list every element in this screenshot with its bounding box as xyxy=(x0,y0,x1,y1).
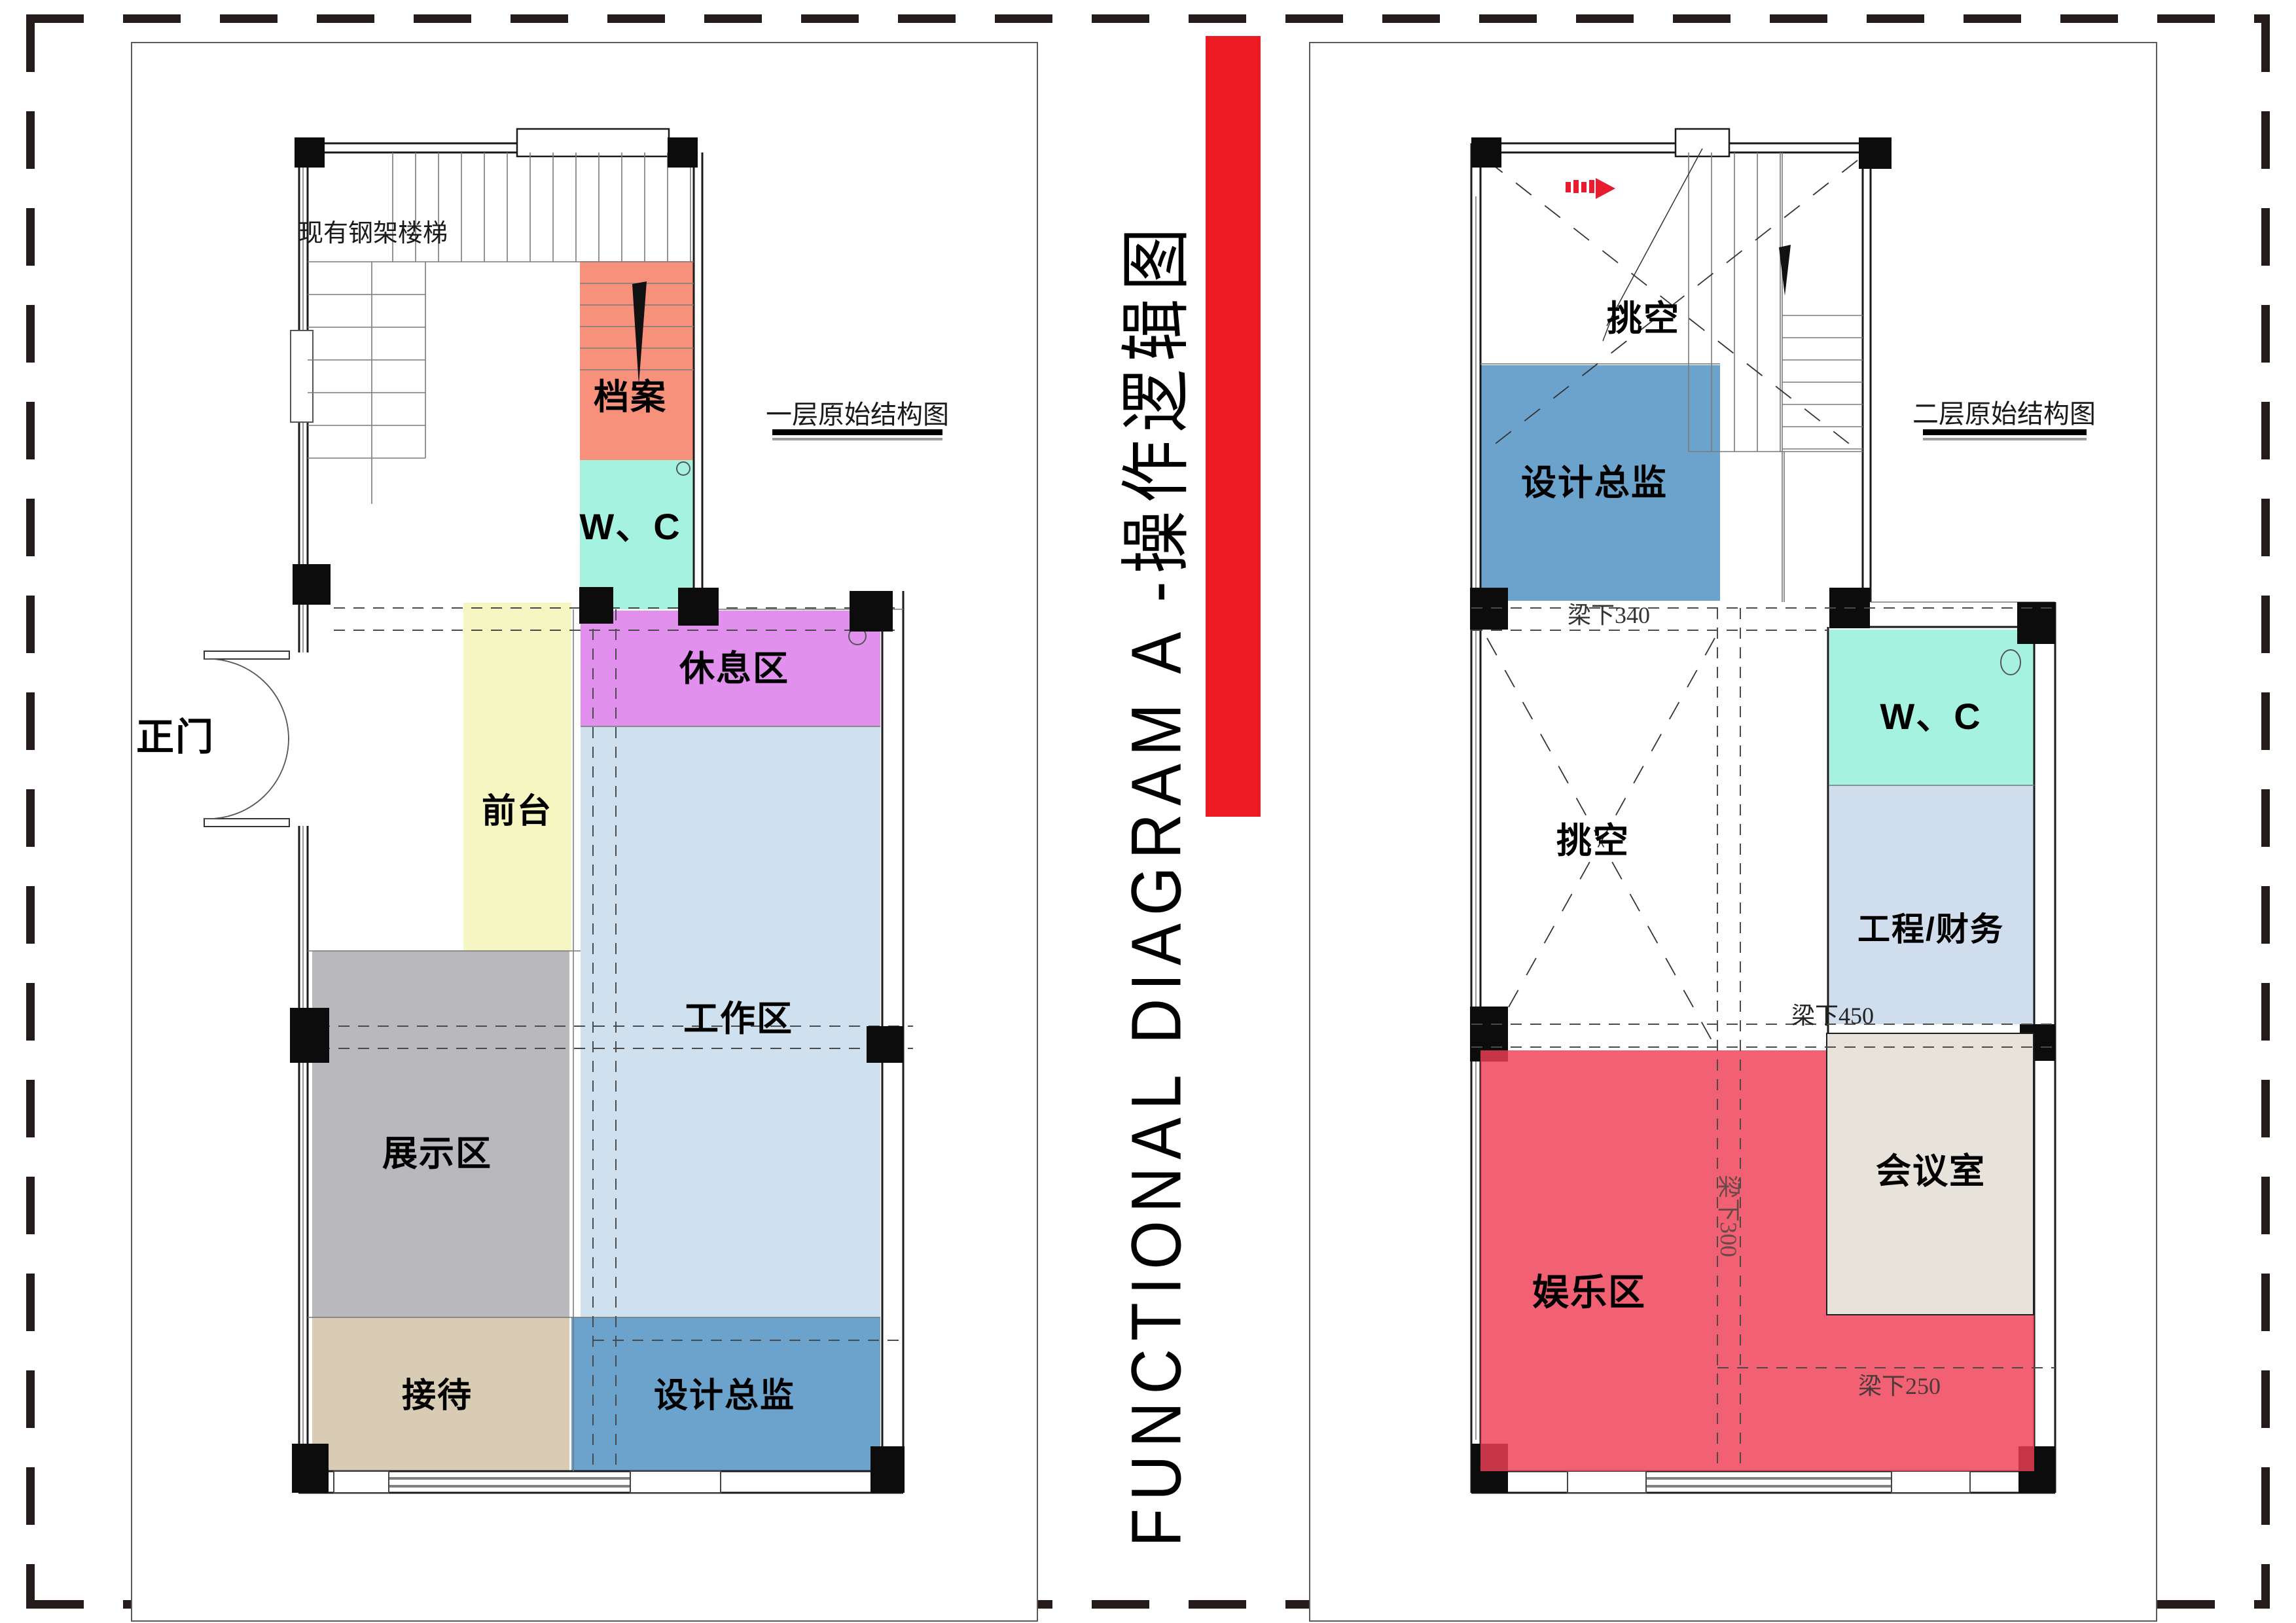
void-mid-label: 挑空 xyxy=(1556,823,1630,859)
stair-note: 现有钢架楼梯 xyxy=(298,221,448,246)
zone-label-greeting: 接待 xyxy=(402,1379,473,1413)
zone-label-design-director: 设计总监 xyxy=(654,1379,795,1413)
beam-label-340: 梁下340 xyxy=(1568,603,1650,627)
zone-label-engineering-finance: 工程/财务 xyxy=(1857,913,2004,946)
zone-label-meeting-room: 会议室 xyxy=(1876,1154,1986,1189)
zone-label-archive: 档案 xyxy=(594,380,667,415)
beam-label-250: 梁下250 xyxy=(1858,1374,1941,1398)
main-entrance-label: 正门 xyxy=(136,719,215,757)
plan2-caption-underline2 xyxy=(1923,438,2087,440)
plan1-caption-underline2 xyxy=(772,438,942,440)
zone-label-lounge: 休息区 xyxy=(679,651,789,687)
sheet-title: FUNCTIONAL DIAGRAM A -操作逻辑图 xyxy=(1099,220,1201,1546)
plan1-caption: 一层原始结构图 xyxy=(766,402,949,428)
zone-label-design-director-2f: 设计总监 xyxy=(1521,465,1668,501)
zone-label-wc: W、C xyxy=(579,508,681,545)
zone-label-display-area: 展示区 xyxy=(382,1136,492,1171)
plan2-caption-underline xyxy=(1923,429,2087,435)
beam-label-450: 梁下450 xyxy=(1791,1004,1874,1027)
void-top-label: 挑空 xyxy=(1607,301,1680,336)
sheet: 档案 W、C 前台 休息区 工作区 展示区 接待 设计总监 正门 现有钢架楼梯 … xyxy=(0,0,2296,1623)
plan1-caption-underline xyxy=(772,429,942,435)
plan2-caption: 二层原始结构图 xyxy=(1912,401,2096,427)
zone-label-entertainment: 娱乐区 xyxy=(1532,1274,1646,1311)
zone-label-reception-desk: 前台 xyxy=(482,794,552,829)
zone-label-wc-2f: W、C xyxy=(1880,698,1981,735)
beam-label-300: 梁下300 xyxy=(1717,1175,1740,1257)
title-accent-bar xyxy=(1206,36,1261,817)
zone-label-work-area: 工作区 xyxy=(683,1001,793,1037)
